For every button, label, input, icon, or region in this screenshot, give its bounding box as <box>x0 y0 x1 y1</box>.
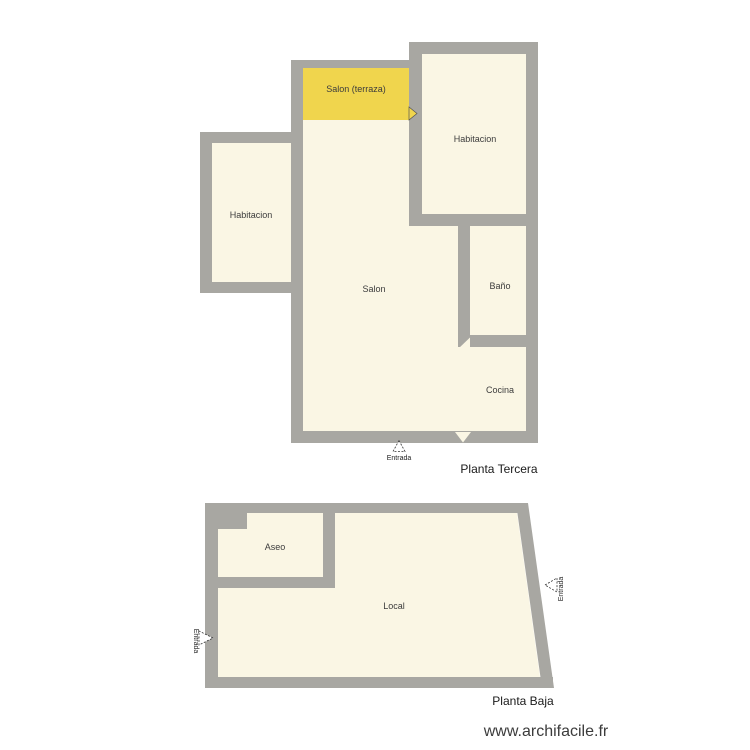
wall-baja-left <box>205 503 218 688</box>
wall-block-top <box>409 42 538 54</box>
room-label-salon: Salon <box>362 284 385 294</box>
room-label-aseo: Aseo <box>265 542 286 552</box>
entrance-label: Entrada <box>387 455 412 462</box>
wall-baja-bottom <box>205 677 553 688</box>
plan-title-tercera: Planta Tercera <box>460 462 537 476</box>
wall-salon-habitacion <box>409 42 422 226</box>
wall-hableft-bottom <box>200 282 303 293</box>
wall-terraza-top <box>291 60 414 68</box>
wall-left <box>291 60 303 443</box>
wall-aseo-right <box>323 503 335 588</box>
room-label-local: Local <box>383 601 405 611</box>
entrance-right-label: Entrada <box>558 577 565 602</box>
planta-baja-plan: Entrada Entrada Aseo Local Planta Baja <box>192 503 565 708</box>
room-label-habitacion-right: Habitacion <box>454 134 497 144</box>
wall-bano-left <box>458 226 470 347</box>
plan-title-baja: Planta Baja <box>492 694 554 708</box>
wall-bottom <box>291 431 538 443</box>
archifacile-watermark: www.archifacile.fr <box>483 723 609 740</box>
planta-tercera-plan: Entrada Salon (terraza) Habitacion Habit… <box>200 42 538 476</box>
room-terraza-highlight <box>303 68 409 120</box>
room-label-cocina: Cocina <box>486 385 514 395</box>
room-local-floor <box>218 513 540 677</box>
wall-hableft-left <box>200 132 212 293</box>
room-label-habitacion-left: Habitacion <box>230 210 273 220</box>
floor-plan-canvas: Entrada Salon (terraza) Habitacion Habit… <box>0 0 750 750</box>
wall-under-habitacion <box>409 214 538 226</box>
wall-baja-top <box>205 503 528 513</box>
floor-plan-page: Entrada Salon (terraza) Habitacion Habit… <box>0 0 750 750</box>
wall-right <box>526 42 538 443</box>
wall-hableft-top <box>200 132 291 143</box>
wall-baja-corner-notch <box>205 503 247 529</box>
wall-aseo-bottom <box>218 577 335 588</box>
room-label-salon-terraza: Salon (terraza) <box>326 84 386 94</box>
room-label-bano: Baño <box>489 281 510 291</box>
entrance-right-triangle-icon <box>545 578 557 592</box>
entrance-left-label: Entrada <box>192 629 199 654</box>
